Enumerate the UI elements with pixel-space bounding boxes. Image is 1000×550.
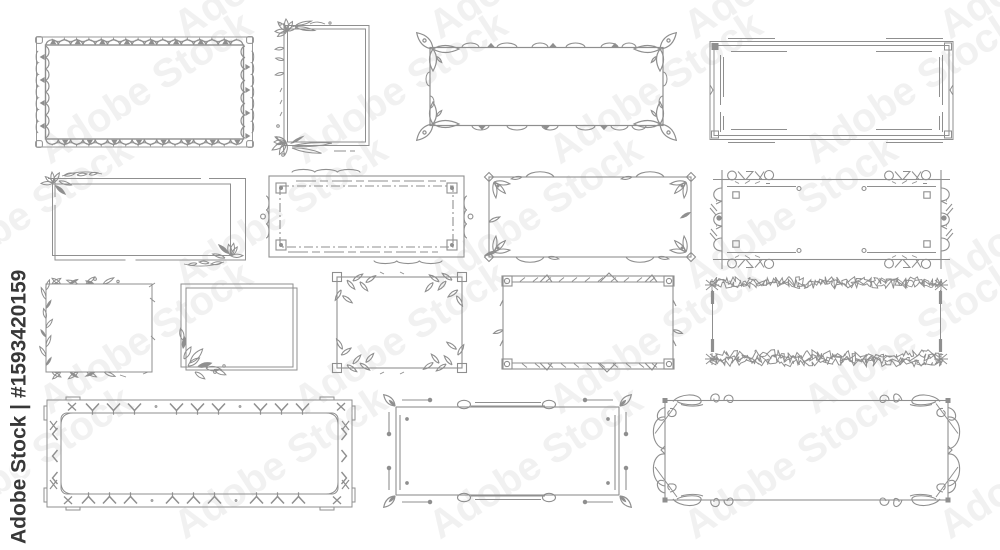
- svg-text:Adobe Stock: Adobe Stock: [0, 0, 141, 48]
- svg-text:Adobe Stock: Adobe Stock: [286, 2, 516, 172]
- svg-text:Adobe Stock: Adobe Stock: [796, 2, 1000, 172]
- svg-text:Adobe Stock: Adobe Stock: [676, 377, 906, 545]
- svg-text:Adobe Stock | #1593420159: Adobe Stock | #1593420159: [8, 270, 31, 544]
- svg-text:Adobe Stock: Adobe Stock: [931, 377, 1000, 545]
- svg-text:Adobe Stock: Adobe Stock: [421, 127, 651, 297]
- svg-text:Adobe Stock: Adobe Stock: [676, 127, 906, 297]
- svg-text:Adobe Stock: Adobe Stock: [541, 2, 771, 172]
- svg-text:Adobe Stock: Adobe Stock: [31, 252, 261, 422]
- svg-text:Adobe Stock: Adobe Stock: [166, 377, 396, 545]
- svg-text:Adobe Stock: Adobe Stock: [166, 127, 396, 297]
